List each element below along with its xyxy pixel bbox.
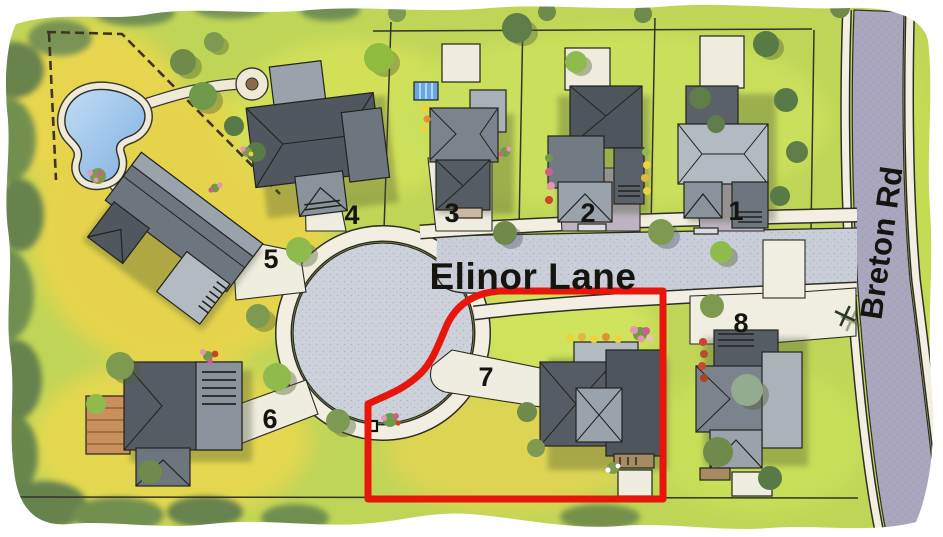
lot-label-8: 8	[733, 308, 748, 338]
lot-label-7: 7	[478, 362, 493, 392]
lot-label-5: 5	[263, 244, 278, 274]
lot-label-6: 6	[262, 404, 277, 434]
walk-lot-8	[763, 240, 805, 298]
street-label: Elinor Lane	[430, 256, 637, 297]
lot-label-3: 3	[444, 198, 459, 228]
lot-label-1: 1	[728, 196, 743, 226]
subdivision-map: Elinor Lane Breton Rd 1 2 3 4 5 6 7 8	[0, 0, 943, 537]
subdivision-map-page: Elinor Lane Breton Rd 1 2 3 4 5 6 7 8	[0, 0, 943, 537]
lot-label-4: 4	[344, 200, 359, 230]
lot-label-2: 2	[580, 198, 595, 228]
